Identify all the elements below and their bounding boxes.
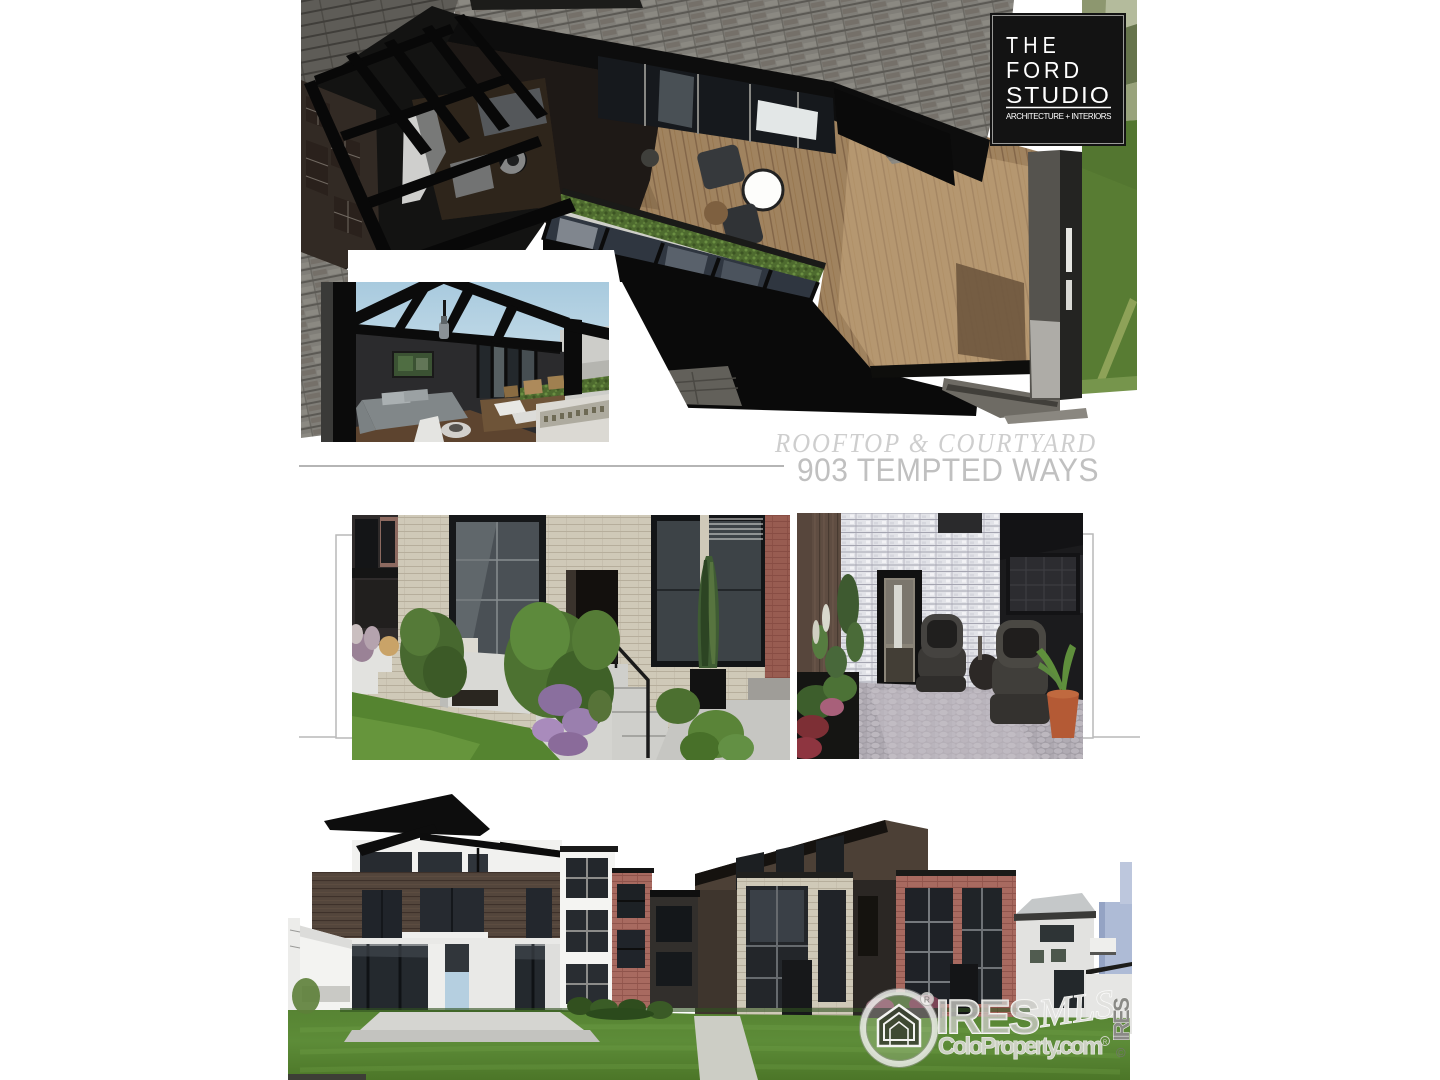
svg-text:FORD: FORD bbox=[1006, 57, 1083, 83]
svg-text:IRES: IRES bbox=[1109, 997, 1134, 1041]
svg-text:903 TEMPTED WAYS: 903 TEMPTED WAYS bbox=[797, 452, 1099, 488]
svg-text:ColoProperty.com: ColoProperty.com bbox=[938, 1033, 1103, 1060]
svg-text:ARCHITECTURE + INTERIORS: ARCHITECTURE + INTERIORS bbox=[1006, 112, 1112, 121]
svg-text:R: R bbox=[1103, 1040, 1108, 1046]
svg-text:STUDIO: STUDIO bbox=[1006, 82, 1111, 108]
svg-text:R: R bbox=[924, 995, 930, 1005]
svg-text:THE: THE bbox=[1006, 32, 1061, 58]
svg-text:©: © bbox=[1116, 1045, 1126, 1060]
